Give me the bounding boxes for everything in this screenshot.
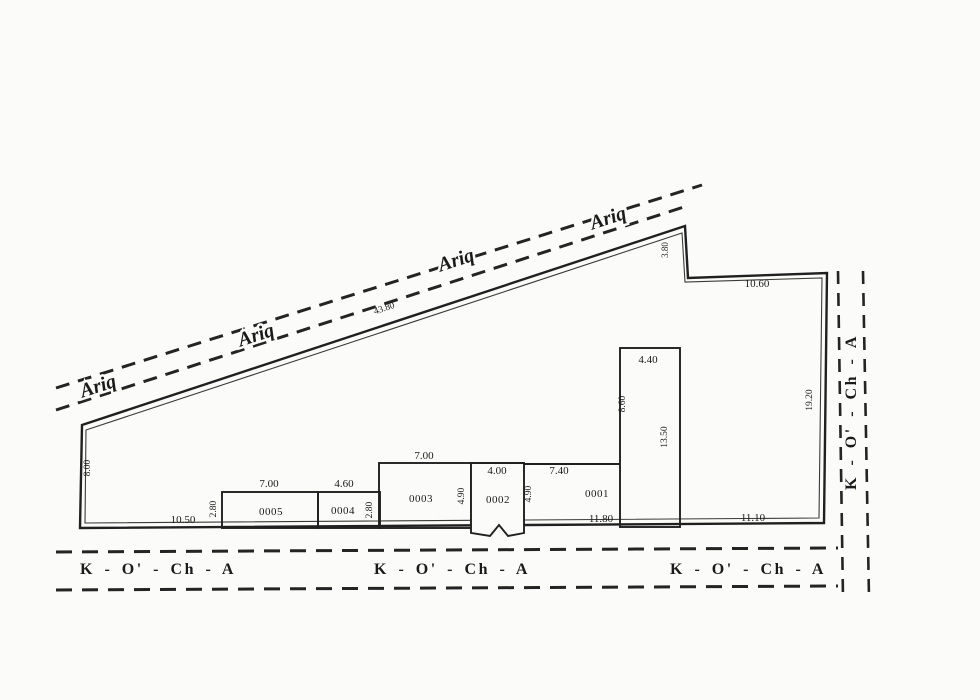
plot-0003-id: 0003 <box>409 493 433 505</box>
street-label-right: K - O' - Ch - A <box>843 334 860 490</box>
dim-plot-0005-depth: 2.80 <box>209 500 219 517</box>
dim-plot-0004-depth: 2.80 <box>365 501 375 518</box>
dim-bottom-left: 10.50 <box>171 514 196 526</box>
plot-0005-id: 0005 <box>259 506 283 518</box>
dim-plot-0002-depth: 4.90 <box>524 485 534 502</box>
dim-plot-0001-width: 7.40 <box>549 465 569 477</box>
street-label-bottom-middle: K - O' - Ch - A <box>374 561 530 578</box>
plot-0004-id: 0004 <box>331 505 355 517</box>
street-label-bottom-left: K - O' - Ch - A <box>80 561 236 578</box>
plot-0001-id: 0001 <box>585 488 609 500</box>
dim-extension-top: 4.40 <box>638 354 658 366</box>
dim-plot-0003-depth: 4.90 <box>457 487 467 504</box>
dim-right-edge: 19.20 <box>805 389 815 411</box>
street-label-bottom-right: K - O' - Ch - A <box>670 561 826 578</box>
dim-plot-0002-width: 4.00 <box>487 465 507 477</box>
dim-plot-0003-width: 7.00 <box>414 450 434 462</box>
paper-background <box>0 0 980 700</box>
dim-extension-right: 13.50 <box>660 426 670 448</box>
dim-plot-0001-bottom: 11.80 <box>589 513 614 525</box>
dim-bottom-right: 11.10 <box>741 512 766 524</box>
dim-extension-left: 8.60 <box>618 395 628 412</box>
plot-0002-id: 0002 <box>486 494 510 506</box>
cadastral-plan: 8.00 10.50 43.80 3.80 10.60 19.20 11.10 … <box>0 0 980 700</box>
dim-top-right-edge: 10.60 <box>745 278 770 290</box>
dim-plot-0005-width: 7.00 <box>259 478 279 490</box>
dim-top-step: 3.80 <box>660 242 670 258</box>
dim-left-edge: 8.00 <box>83 459 93 476</box>
dim-plot-0004-width: 4.60 <box>334 478 354 490</box>
